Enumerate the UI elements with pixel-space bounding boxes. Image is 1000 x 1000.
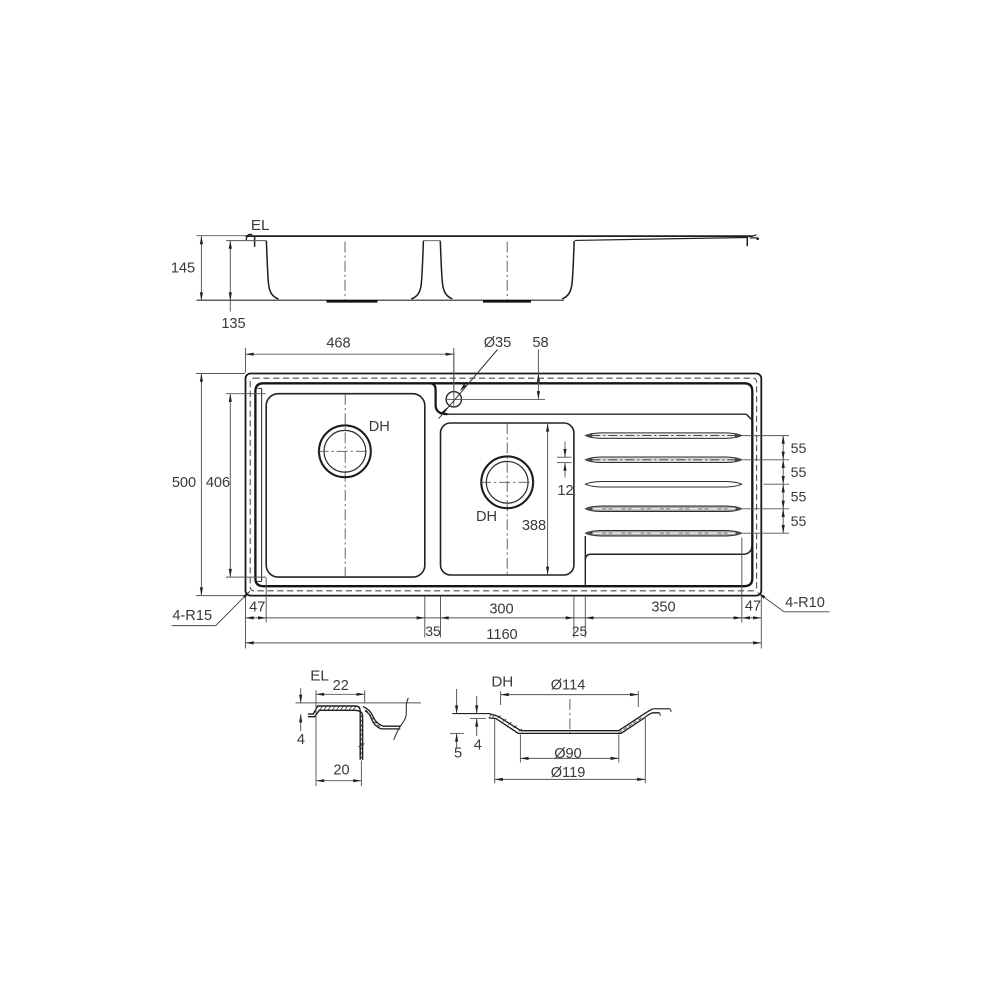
svg-text:20: 20 <box>333 763 349 779</box>
svg-text:468: 468 <box>326 336 350 352</box>
svg-text:135: 135 <box>221 316 245 332</box>
svg-text:55: 55 <box>791 465 807 481</box>
svg-text:55: 55 <box>791 441 807 457</box>
svg-text:35: 35 <box>425 624 441 639</box>
svg-text:25: 25 <box>572 624 588 639</box>
svg-text:Ø114: Ø114 <box>551 678 586 694</box>
svg-text:DH: DH <box>476 509 497 525</box>
svg-text:4-R10: 4-R10 <box>785 595 825 611</box>
svg-text:300: 300 <box>489 602 513 618</box>
svg-text:Ø35: Ø35 <box>484 335 512 351</box>
svg-text:EL: EL <box>251 217 270 234</box>
svg-text:4: 4 <box>474 738 482 754</box>
svg-text:55: 55 <box>791 514 807 530</box>
svg-text:388: 388 <box>522 518 546 534</box>
svg-text:4: 4 <box>297 732 305 748</box>
svg-text:47: 47 <box>745 599 761 615</box>
svg-text:350: 350 <box>651 600 675 616</box>
svg-text:58: 58 <box>532 335 548 351</box>
svg-text:EL: EL <box>310 667 329 684</box>
svg-text:55: 55 <box>791 490 807 506</box>
svg-text:Ø119: Ø119 <box>551 765 586 781</box>
svg-text:145: 145 <box>171 260 195 276</box>
svg-text:Ø90: Ø90 <box>554 746 582 762</box>
svg-text:DH: DH <box>369 419 390 435</box>
svg-text:47: 47 <box>249 600 265 616</box>
svg-text:22: 22 <box>333 678 349 694</box>
svg-text:12: 12 <box>557 483 573 499</box>
svg-text:500: 500 <box>172 475 196 491</box>
svg-text:DH: DH <box>491 673 513 690</box>
svg-text:5: 5 <box>454 746 462 762</box>
svg-text:406: 406 <box>206 475 230 491</box>
svg-text:1160: 1160 <box>486 627 517 643</box>
svg-text:4-R15: 4-R15 <box>172 608 212 624</box>
